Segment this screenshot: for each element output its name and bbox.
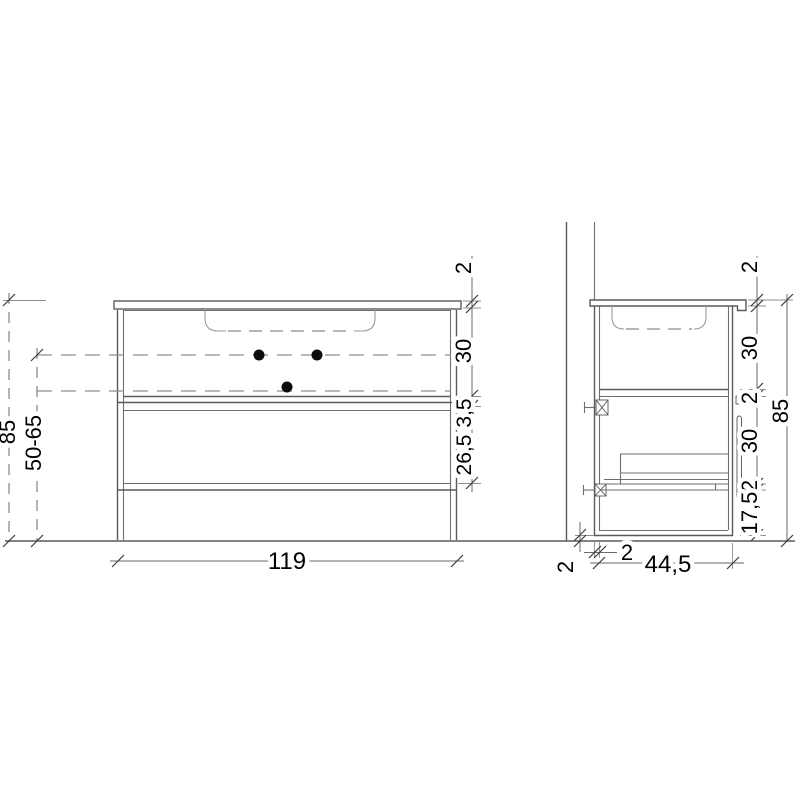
- front-rail-label: 3,5: [453, 398, 476, 427]
- side-wall-gap-label: 2: [621, 540, 633, 565]
- drawing-svg: 85 50-65 119 2: [0, 0, 800, 800]
- faucet-hole-dot: [254, 350, 265, 361]
- drawer-box: [600, 454, 728, 490]
- side-divider-label: 2: [737, 392, 762, 404]
- front-countertop: [114, 301, 461, 309]
- front-countertop-thickness-label: 2: [451, 262, 476, 274]
- side-countertop: [590, 300, 746, 311]
- front-height-label: 85: [0, 420, 20, 444]
- side-top-drawer-label: 30: [737, 336, 762, 360]
- side-basin-outline: [612, 306, 706, 329]
- side-depth-label: 44,5: [645, 551, 692, 578]
- front-bottom-drawer-label: 26,5: [453, 435, 476, 476]
- front-view: [37, 301, 461, 540]
- vanity-dimension-drawing: 85 50-65 119 2: [0, 0, 800, 800]
- front-width-label: 119: [268, 548, 306, 575]
- front-top-drawer-label: 30: [451, 339, 476, 363]
- side-height-label: 85: [768, 399, 793, 423]
- side-leg-height-label: 17,5: [737, 492, 762, 535]
- side-countertop-thickness-label: 2: [737, 261, 762, 273]
- faucet-hole-dot: [312, 350, 323, 361]
- side-view: [567, 222, 747, 541]
- front-drain-range-label: 50-65: [21, 415, 46, 471]
- wall-bracket-upper: [584, 400, 608, 415]
- side-bottom-drawer-label: 30: [737, 429, 762, 453]
- faucet-hole-dot: [282, 382, 293, 393]
- side-floor-gap-label: 2: [553, 561, 578, 573]
- front-basin-outline: [205, 309, 375, 331]
- side-bottom-panel-label: 2: [737, 480, 762, 492]
